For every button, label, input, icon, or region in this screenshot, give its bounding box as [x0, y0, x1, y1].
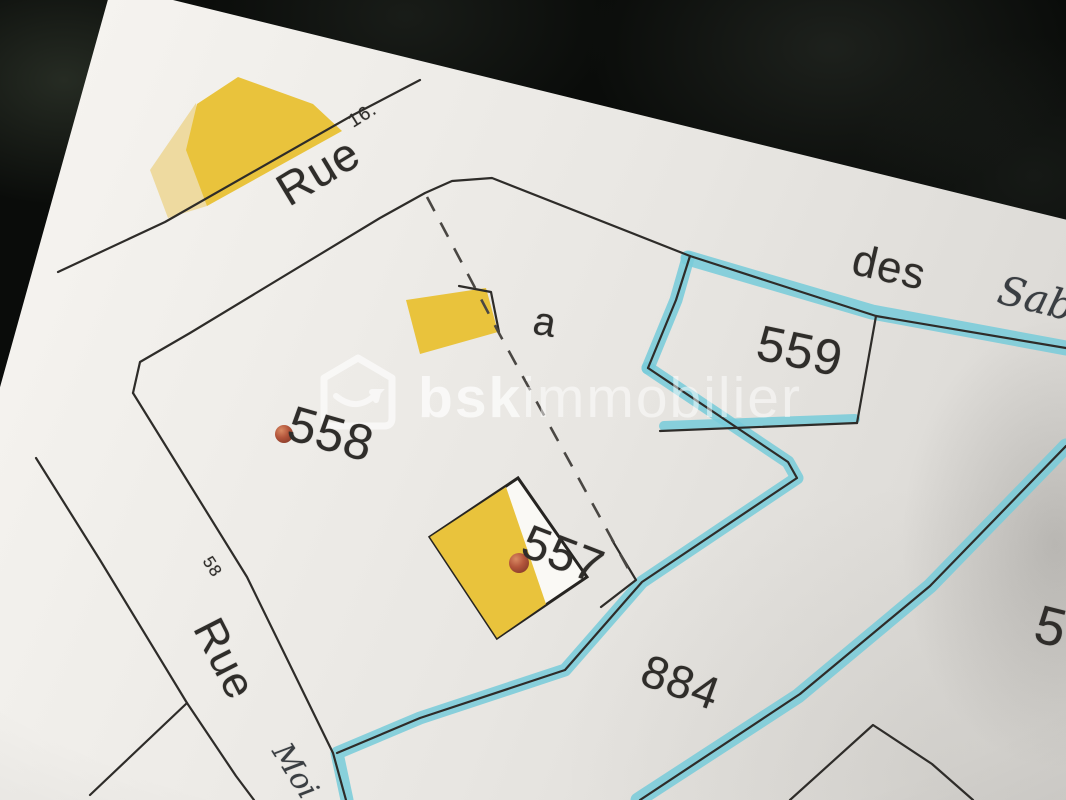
building-small-center [406, 288, 498, 354]
photo-of-cadastral-map: bskimmobilier Rue 16. des Sab 559 558 55… [0, 0, 1066, 800]
cadastral-linework [0, 0, 1066, 800]
